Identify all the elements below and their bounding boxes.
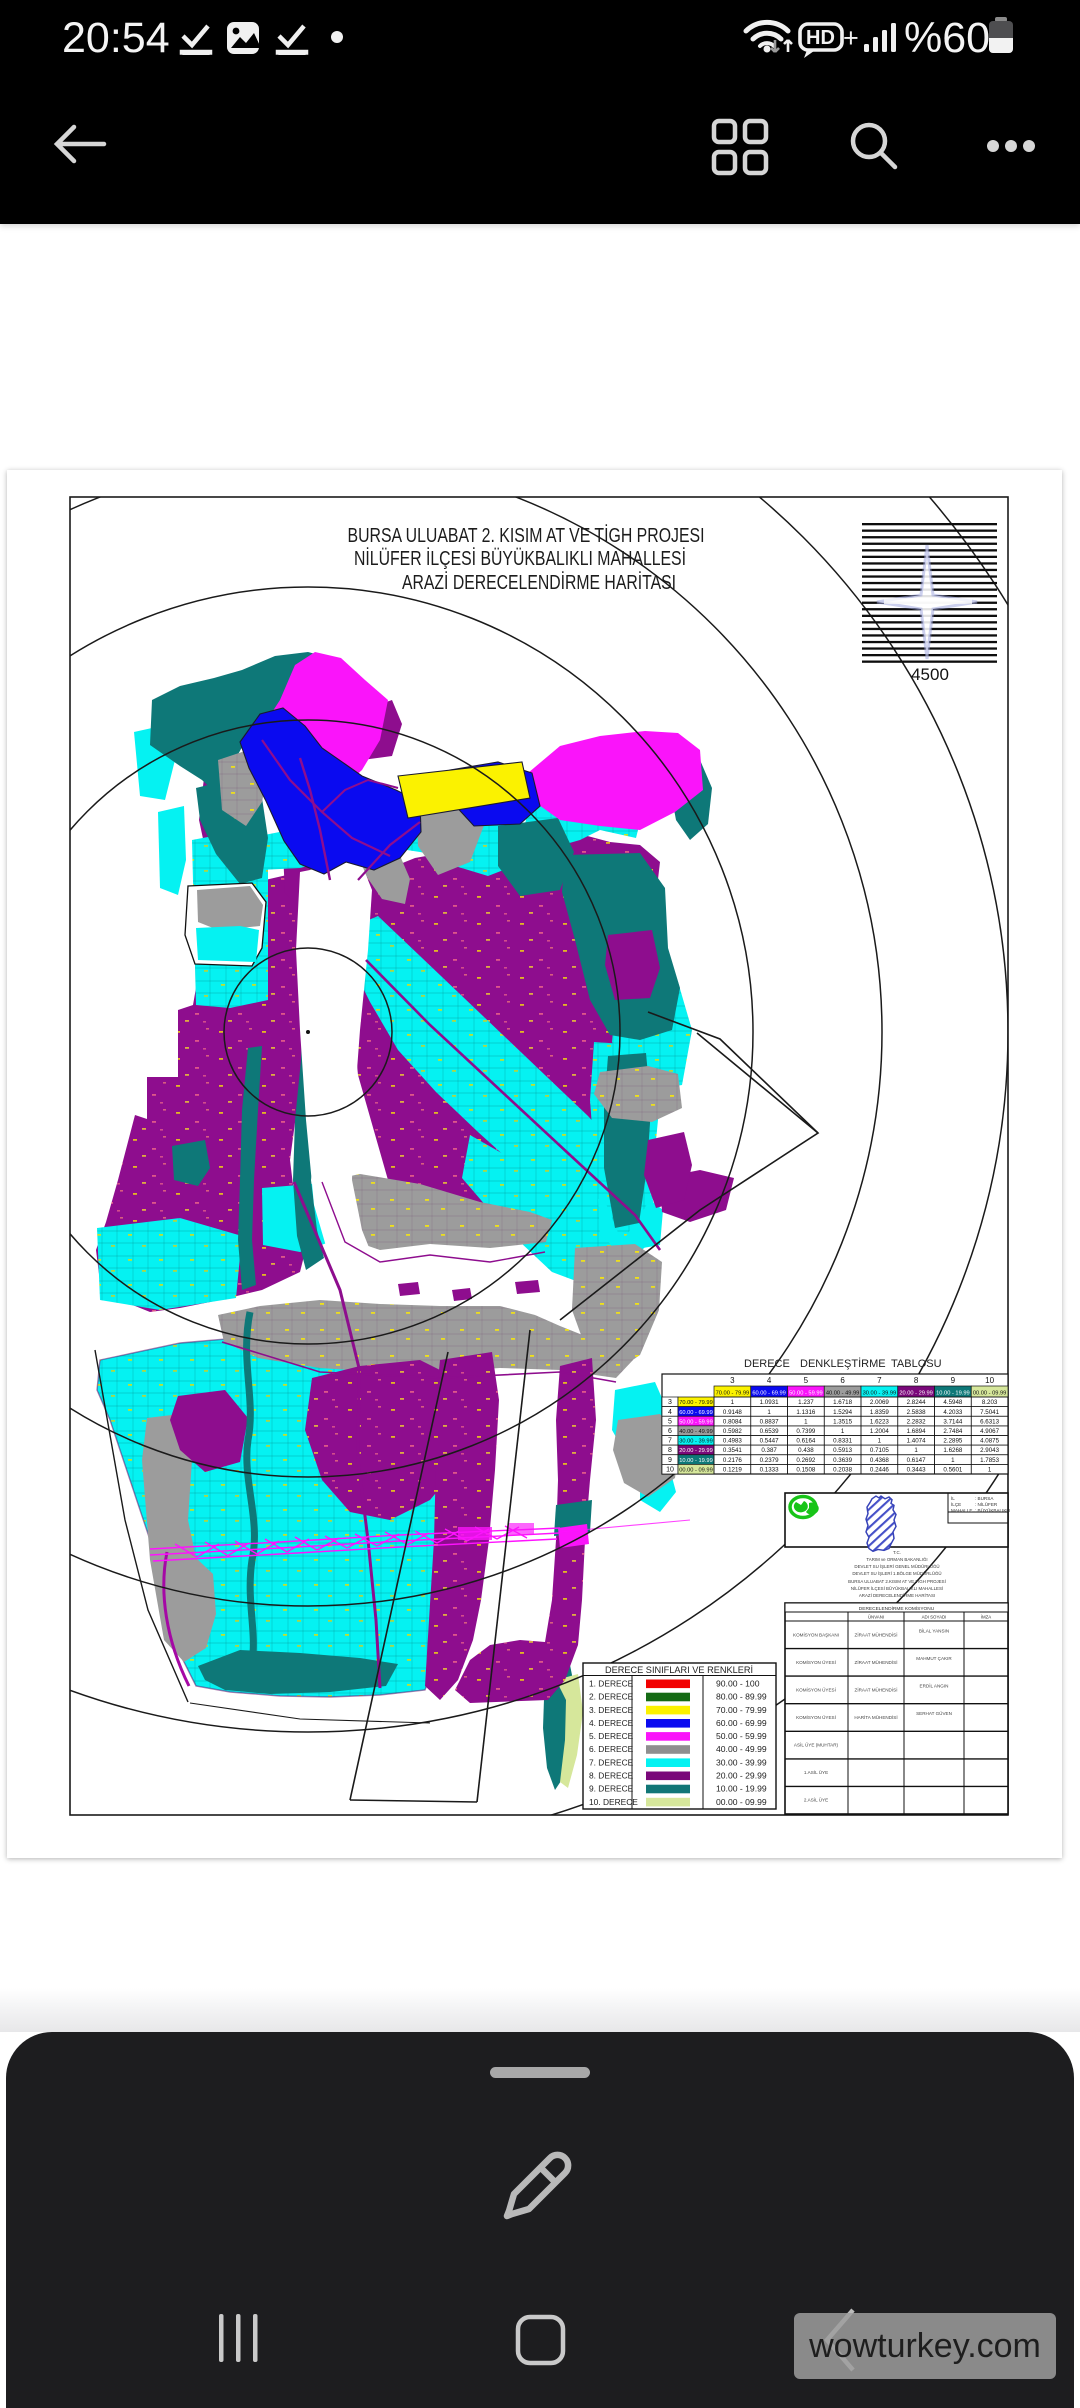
svg-text:7.5041: 7.5041	[980, 1409, 999, 1416]
svg-text:5. DERECE: 5. DERECE	[589, 1731, 634, 1741]
svg-text:1. DERECE: 1. DERECE	[589, 1679, 634, 1689]
svg-text:1.ASİL ÜYE: 1.ASİL ÜYE	[804, 1769, 828, 1775]
svg-text:1.8359: 1.8359	[870, 1409, 889, 1416]
svg-text:0.1333: 0.1333	[760, 1467, 779, 1474]
svg-text:7. DERECE: 7. DERECE	[589, 1757, 634, 1767]
svg-text:6: 6	[668, 1428, 672, 1435]
svg-text:80.00 - 89.99: 80.00 - 89.99	[716, 1692, 767, 1702]
svg-text:TARIM ve ORMAN BAKANLIĞI: TARIM ve ORMAN BAKANLIĞI	[866, 1557, 927, 1562]
svg-text:BURSA ULUABAT 2.KISIM AT VE Tİ: BURSA ULUABAT 2.KISIM AT VE TİGH PROJESİ	[848, 1579, 946, 1584]
svg-text:0.4983: 0.4983	[723, 1438, 742, 1445]
svg-text:9: 9	[668, 1457, 672, 1464]
svg-text:3: 3	[668, 1399, 672, 1406]
svg-text:1.4074: 1.4074	[907, 1438, 926, 1445]
svg-text:10. DERECE: 10. DERECE	[589, 1797, 638, 1807]
svg-text:0.3443: 0.3443	[907, 1467, 926, 1474]
svg-text:6: 6	[840, 1376, 845, 1385]
svg-text:30.00 - 39.99: 30.00 - 39.99	[863, 1391, 897, 1397]
svg-text:9: 9	[951, 1376, 956, 1385]
svg-text:ZİRAAT MÜHENDİSİ: ZİRAAT MÜHENDİSİ	[855, 1631, 898, 1637]
svg-text:0.5913: 0.5913	[833, 1447, 852, 1454]
svg-text:DERECE SINIFLARI VE RENKLERİ: DERECE SINIFLARI VE RENKLERİ	[605, 1665, 753, 1675]
svg-text:2.2895: 2.2895	[943, 1438, 962, 1445]
svg-text:: BURSA: : BURSA	[975, 1496, 994, 1501]
svg-text:2.9043: 2.9043	[980, 1447, 999, 1454]
svg-text:DENKLEŞTİRME: DENKLEŞTİRME	[800, 1357, 886, 1370]
svg-text:KOMİSYON BAŞKANI: KOMİSYON BAŞKANI	[793, 1631, 839, 1637]
svg-text:1: 1	[804, 1418, 808, 1425]
svg-text:3: 3	[730, 1376, 735, 1385]
svg-text:10: 10	[985, 1376, 994, 1385]
svg-text:ZİRAAT MÜHENDİSİ: ZİRAAT MÜHENDİSİ	[855, 1686, 898, 1692]
svg-text:0.2038: 0.2038	[833, 1467, 852, 1474]
svg-text:1.237: 1.237	[798, 1399, 814, 1406]
svg-text:0.4368: 0.4368	[870, 1457, 889, 1464]
svg-text:30.00 - 39.99: 30.00 - 39.99	[716, 1757, 767, 1767]
svg-text:20.00 - 29.99: 20.00 - 29.99	[679, 1448, 713, 1454]
svg-text:6.6313: 6.6313	[980, 1418, 999, 1425]
svg-text:T.C.: T.C.	[893, 1550, 901, 1555]
svg-text:20.00 - 29.99: 20.00 - 29.99	[899, 1391, 933, 1397]
svg-text:TABLOSU: TABLOSU	[891, 1358, 942, 1370]
svg-text:50.00 - 59.99: 50.00 - 59.99	[716, 1731, 767, 1741]
svg-text:İLÇE: İLÇE	[951, 1501, 961, 1507]
svg-text:0.2176: 0.2176	[723, 1457, 742, 1464]
svg-text:2.0069: 2.0069	[870, 1399, 889, 1406]
svg-text:4: 4	[767, 1376, 772, 1385]
svg-text:+: +	[843, 23, 859, 53]
svg-text:ARAZİ DERECELENDİRME HARİTASI: ARAZİ DERECELENDİRME HARİTASI	[859, 1593, 935, 1598]
svg-text:1: 1	[731, 1399, 735, 1406]
svg-text:MAHMUT ÇAKIR: MAHMUT ÇAKIR	[916, 1656, 952, 1661]
svg-text:60.00 - 69.99: 60.00 - 69.99	[752, 1391, 786, 1397]
svg-text:: NİLÜFER: : NİLÜFER	[975, 1501, 998, 1507]
svg-text:00.00 - 09.99: 00.00 - 09.99	[716, 1797, 767, 1807]
svg-text:4: 4	[668, 1409, 672, 1416]
svg-text:DEVLET SU İŞLERİ GENEL MÜDÜRLÜ: DEVLET SU İŞLERİ GENEL MÜDÜRLÜĞÜ	[854, 1564, 939, 1569]
svg-text:50.00 - 59.99: 50.00 - 59.99	[679, 1419, 713, 1425]
svg-text:7: 7	[877, 1376, 882, 1385]
svg-text:2. DERECE: 2. DERECE	[589, 1692, 634, 1702]
svg-text:4.0875: 4.0875	[980, 1438, 999, 1445]
svg-text:1.1316: 1.1316	[796, 1409, 815, 1416]
svg-text:4. DERECE: 4. DERECE	[589, 1718, 634, 1728]
svg-text:DEVLET SU İŞLERİ 1.BÖLGE MÜDÜR: DEVLET SU İŞLERİ 1.BÖLGE MÜDÜRLÜĞÜ	[852, 1571, 941, 1576]
svg-text:ERDİL ANGIN: ERDİL ANGIN	[920, 1682, 949, 1688]
svg-text:1.2004: 1.2004	[870, 1428, 889, 1435]
svg-text:10.00 - 19.99: 10.00 - 19.99	[679, 1458, 713, 1464]
svg-text:1.6223: 1.6223	[870, 1418, 889, 1425]
svg-text:DERECELENDİRME KOMİSYONU: DERECELENDİRME KOMİSYONU	[859, 1605, 935, 1612]
svg-text:ARAZİ DERECELENDİRME HARİTASI: ARAZİ DERECELENDİRME HARİTASI	[402, 571, 676, 594]
svg-text:0.3541: 0.3541	[723, 1447, 742, 1454]
svg-text:0.5601: 0.5601	[943, 1467, 962, 1474]
svg-text:1.5294: 1.5294	[833, 1409, 852, 1416]
svg-text:70.00 - 79.99: 70.00 - 79.99	[716, 1391, 750, 1397]
svg-text:1.3515: 1.3515	[833, 1418, 852, 1425]
svg-text:4.9067: 4.9067	[980, 1428, 999, 1435]
svg-text:70.00 - 79.99: 70.00 - 79.99	[716, 1705, 767, 1715]
svg-text:0.6164: 0.6164	[796, 1438, 815, 1445]
svg-text:%60: %60	[904, 14, 990, 62]
svg-text:0.2446: 0.2446	[870, 1467, 889, 1474]
svg-text:1: 1	[988, 1467, 992, 1474]
svg-text:40.00 - 49.99: 40.00 - 49.99	[826, 1391, 860, 1397]
svg-text:0.5982: 0.5982	[723, 1428, 742, 1435]
svg-text:0.7399: 0.7399	[796, 1428, 815, 1435]
svg-text:6. DERECE: 6. DERECE	[589, 1744, 634, 1754]
svg-text:0.8084: 0.8084	[723, 1418, 742, 1425]
svg-text:0.438: 0.438	[798, 1447, 814, 1454]
svg-text:10.00 - 19.99: 10.00 - 19.99	[936, 1391, 970, 1397]
svg-text:0.2692: 0.2692	[796, 1457, 815, 1464]
svg-text:2.8244: 2.8244	[907, 1399, 926, 1406]
svg-text:0.1508: 0.1508	[796, 1467, 815, 1474]
svg-text:0.8837: 0.8837	[760, 1418, 779, 1425]
svg-text:3. DERECE: 3. DERECE	[589, 1705, 634, 1715]
svg-text:40.00 - 49.99: 40.00 - 49.99	[716, 1744, 767, 1754]
svg-text:KOMİSYON ÜYESİ: KOMİSYON ÜYESİ	[796, 1714, 836, 1720]
svg-text:5: 5	[804, 1376, 809, 1385]
svg-text:20.00 - 29.99: 20.00 - 29.99	[716, 1771, 767, 1781]
svg-text:1: 1	[767, 1409, 771, 1416]
svg-text:7: 7	[668, 1438, 672, 1445]
svg-text:0.6539: 0.6539	[760, 1428, 779, 1435]
svg-text:0.8331: 0.8331	[833, 1438, 852, 1445]
svg-text:1: 1	[951, 1457, 955, 1464]
svg-text:1.6268: 1.6268	[943, 1447, 962, 1454]
svg-text:10: 10	[666, 1467, 674, 1474]
svg-text:BİLAL YANSIN: BİLAL YANSIN	[919, 1627, 949, 1633]
svg-text:HARİTA MÜHENDİSİ: HARİTA MÜHENDİSİ	[854, 1714, 897, 1720]
svg-text:30.00 - 39.99: 30.00 - 39.99	[679, 1439, 713, 1445]
svg-text:2.2832: 2.2832	[907, 1418, 926, 1425]
svg-text:4500: 4500	[911, 665, 949, 684]
svg-text:ÜNVANI: ÜNVANI	[868, 1615, 884, 1620]
svg-text:2.ASİL ÜYE: 2.ASİL ÜYE	[804, 1797, 828, 1803]
svg-text:4.5948: 4.5948	[943, 1399, 962, 1406]
svg-text:3.7144: 3.7144	[943, 1418, 962, 1425]
svg-text:0.6147: 0.6147	[907, 1457, 926, 1464]
svg-text:KOMİSYON ÜYESİ: KOMİSYON ÜYESİ	[796, 1659, 836, 1665]
svg-text:40.00 - 49.99: 40.00 - 49.99	[679, 1429, 713, 1435]
svg-text:ADI SOYADI: ADI SOYADI	[922, 1615, 947, 1620]
svg-text:İL: İL	[951, 1495, 955, 1501]
svg-text:2.7484: 2.7484	[943, 1428, 962, 1435]
svg-text:1: 1	[841, 1428, 845, 1435]
svg-text:00.00 - 09.99: 00.00 - 09.99	[973, 1391, 1007, 1397]
svg-text:20:54: 20:54	[62, 14, 170, 62]
svg-text:2.5838: 2.5838	[907, 1409, 926, 1416]
svg-text:8: 8	[914, 1376, 919, 1385]
svg-text:00.00 - 09.99: 00.00 - 09.99	[679, 1468, 713, 1474]
svg-text:1.6718: 1.6718	[833, 1399, 852, 1406]
svg-text:0.387: 0.387	[761, 1447, 777, 1454]
svg-text:0.7105: 0.7105	[870, 1447, 889, 1454]
svg-text:ZİRAAT MÜHENDİSİ: ZİRAAT MÜHENDİSİ	[855, 1659, 898, 1665]
svg-text:60.00 - 69.99: 60.00 - 69.99	[679, 1410, 713, 1416]
svg-text:4.2033: 4.2033	[943, 1409, 962, 1416]
svg-text:70.00 - 79.99: 70.00 - 79.99	[679, 1400, 713, 1406]
svg-text:8. DERECE: 8. DERECE	[589, 1771, 634, 1781]
svg-text:İMZA: İMZA	[981, 1615, 992, 1620]
svg-text:1: 1	[878, 1438, 882, 1445]
svg-text:NİLÜFER İLÇESİ BÜYÜKBALIKLI M: NİLÜFER İLÇESİ BÜYÜKBALIKLI MAHALLESİ	[354, 547, 686, 570]
svg-text:KOMİSYON ÜYESİ: KOMİSYON ÜYESİ	[796, 1686, 836, 1692]
svg-text:0.2379: 0.2379	[760, 1457, 779, 1464]
svg-text:: BÜYÜKBALIKLI: : BÜYÜKBALIKLI	[975, 1507, 1010, 1513]
svg-text:60.00 - 69.99: 60.00 - 69.99	[716, 1718, 767, 1728]
svg-text:0.9148: 0.9148	[723, 1409, 742, 1416]
svg-text:9. DERECE: 9. DERECE	[589, 1784, 634, 1794]
svg-text:1.0931: 1.0931	[760, 1399, 779, 1406]
svg-text:BURSA ULUABAT 2. KISIM AT VE T: BURSA ULUABAT 2. KISIM AT VE TİGH PROJES…	[348, 524, 705, 547]
svg-text:1: 1	[914, 1447, 918, 1454]
svg-text:MAHALLE: MAHALLE	[951, 1508, 972, 1513]
svg-text:SERHAT GÜVEN: SERHAT GÜVEN	[916, 1710, 952, 1716]
svg-text:ASİL ÜYE (MUHTAR): ASİL ÜYE (MUHTAR)	[794, 1742, 839, 1748]
svg-text:10.00 - 19.99: 10.00 - 19.99	[716, 1784, 767, 1794]
svg-text:90.00 - 100: 90.00 - 100	[716, 1679, 760, 1689]
svg-text:1.6894: 1.6894	[907, 1428, 926, 1435]
svg-text:DERECE: DERECE	[744, 1358, 790, 1370]
svg-text:0.3639: 0.3639	[833, 1457, 852, 1464]
svg-text:5: 5	[668, 1418, 672, 1425]
svg-text:8: 8	[668, 1447, 672, 1454]
svg-text:0.1219: 0.1219	[723, 1467, 742, 1474]
svg-text:HD: HD	[806, 27, 835, 49]
svg-text:1.7853: 1.7853	[980, 1457, 999, 1464]
svg-text:8.203: 8.203	[982, 1399, 998, 1406]
svg-text:0.5447: 0.5447	[760, 1438, 779, 1445]
svg-text:50.00 - 59.99: 50.00 - 59.99	[789, 1391, 823, 1397]
svg-text:NİLÜFER İLÇESİ BÜYÜKBALIKLI M: NİLÜFER İLÇESİ BÜYÜKBALIKLI MAHALLESİ	[851, 1586, 943, 1591]
